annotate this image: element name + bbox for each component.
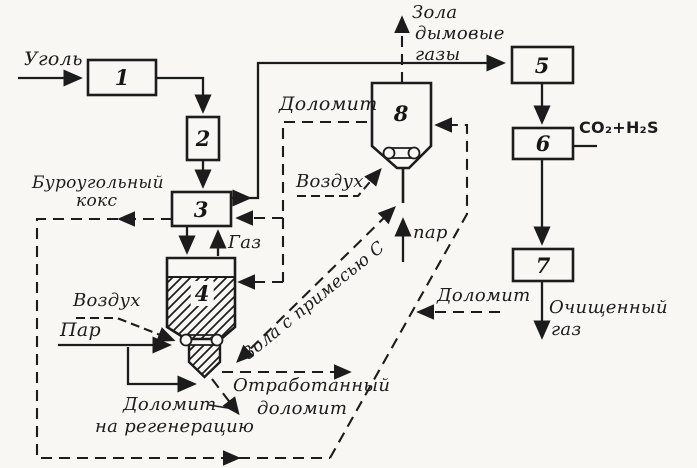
dolomite-right-label: Доломит xyxy=(437,287,530,306)
air-unit8-label: Воздух xyxy=(296,173,364,192)
air-unit4-label: Воздух xyxy=(73,292,141,311)
unit4-vessel xyxy=(167,258,235,377)
gas-label: Газ xyxy=(228,234,261,253)
diagram-canvas xyxy=(0,0,697,468)
flue-gases-label-line1: дымовые xyxy=(415,25,505,44)
unit3-number: 3 xyxy=(194,197,209,222)
steam-unit8-label: пар xyxy=(413,224,448,243)
unit7-number: 7 xyxy=(536,253,551,278)
flue-gases-label-line2: газы xyxy=(415,46,461,65)
unit1-number: 1 xyxy=(115,65,130,90)
unit6-number: 6 xyxy=(536,131,551,156)
unit4-lower-cone xyxy=(189,345,220,377)
purified-gas-label-line2: газ xyxy=(551,321,582,340)
unit8-number: 8 xyxy=(394,101,409,126)
dolomite-top-label: Доломит xyxy=(279,95,378,115)
co2-h2s-label: CO₂+H₂S xyxy=(579,120,659,137)
unit4-nozzle-left xyxy=(181,335,192,346)
purified-gas-label-line1: Очищенный xyxy=(549,299,668,318)
dolomite-regen-label-line1: Доломит xyxy=(123,396,216,415)
unit1-to-unit2-line xyxy=(156,78,203,111)
unit3-to-unit5-line xyxy=(231,63,503,198)
steam-unit4-label: Пар xyxy=(60,321,101,341)
ash-label: Зола xyxy=(412,4,457,23)
unit4-number: 4 xyxy=(191,281,214,306)
coal-label: Уголь xyxy=(24,50,83,70)
unit8-nozzle-right xyxy=(409,148,420,159)
dolomite-regen-label-line2: на регенерацию xyxy=(95,418,254,437)
spent-dolomite-label-line2: доломит xyxy=(257,400,347,419)
unit8-nozzle-left xyxy=(384,148,395,159)
spent-dolomite-label-line1: Отработанный xyxy=(233,377,390,396)
unit5-number: 5 xyxy=(535,53,550,78)
brown-coal-coke-label-line2: кокс xyxy=(76,193,117,211)
unit4-nozzle-right xyxy=(212,335,223,346)
unit2-number: 2 xyxy=(196,126,211,151)
bottom-duct-line xyxy=(128,347,194,384)
process-boxes xyxy=(88,47,573,281)
diagram-page: Уголь Буроугольный кокс Доломит Воздух п… xyxy=(0,0,697,468)
